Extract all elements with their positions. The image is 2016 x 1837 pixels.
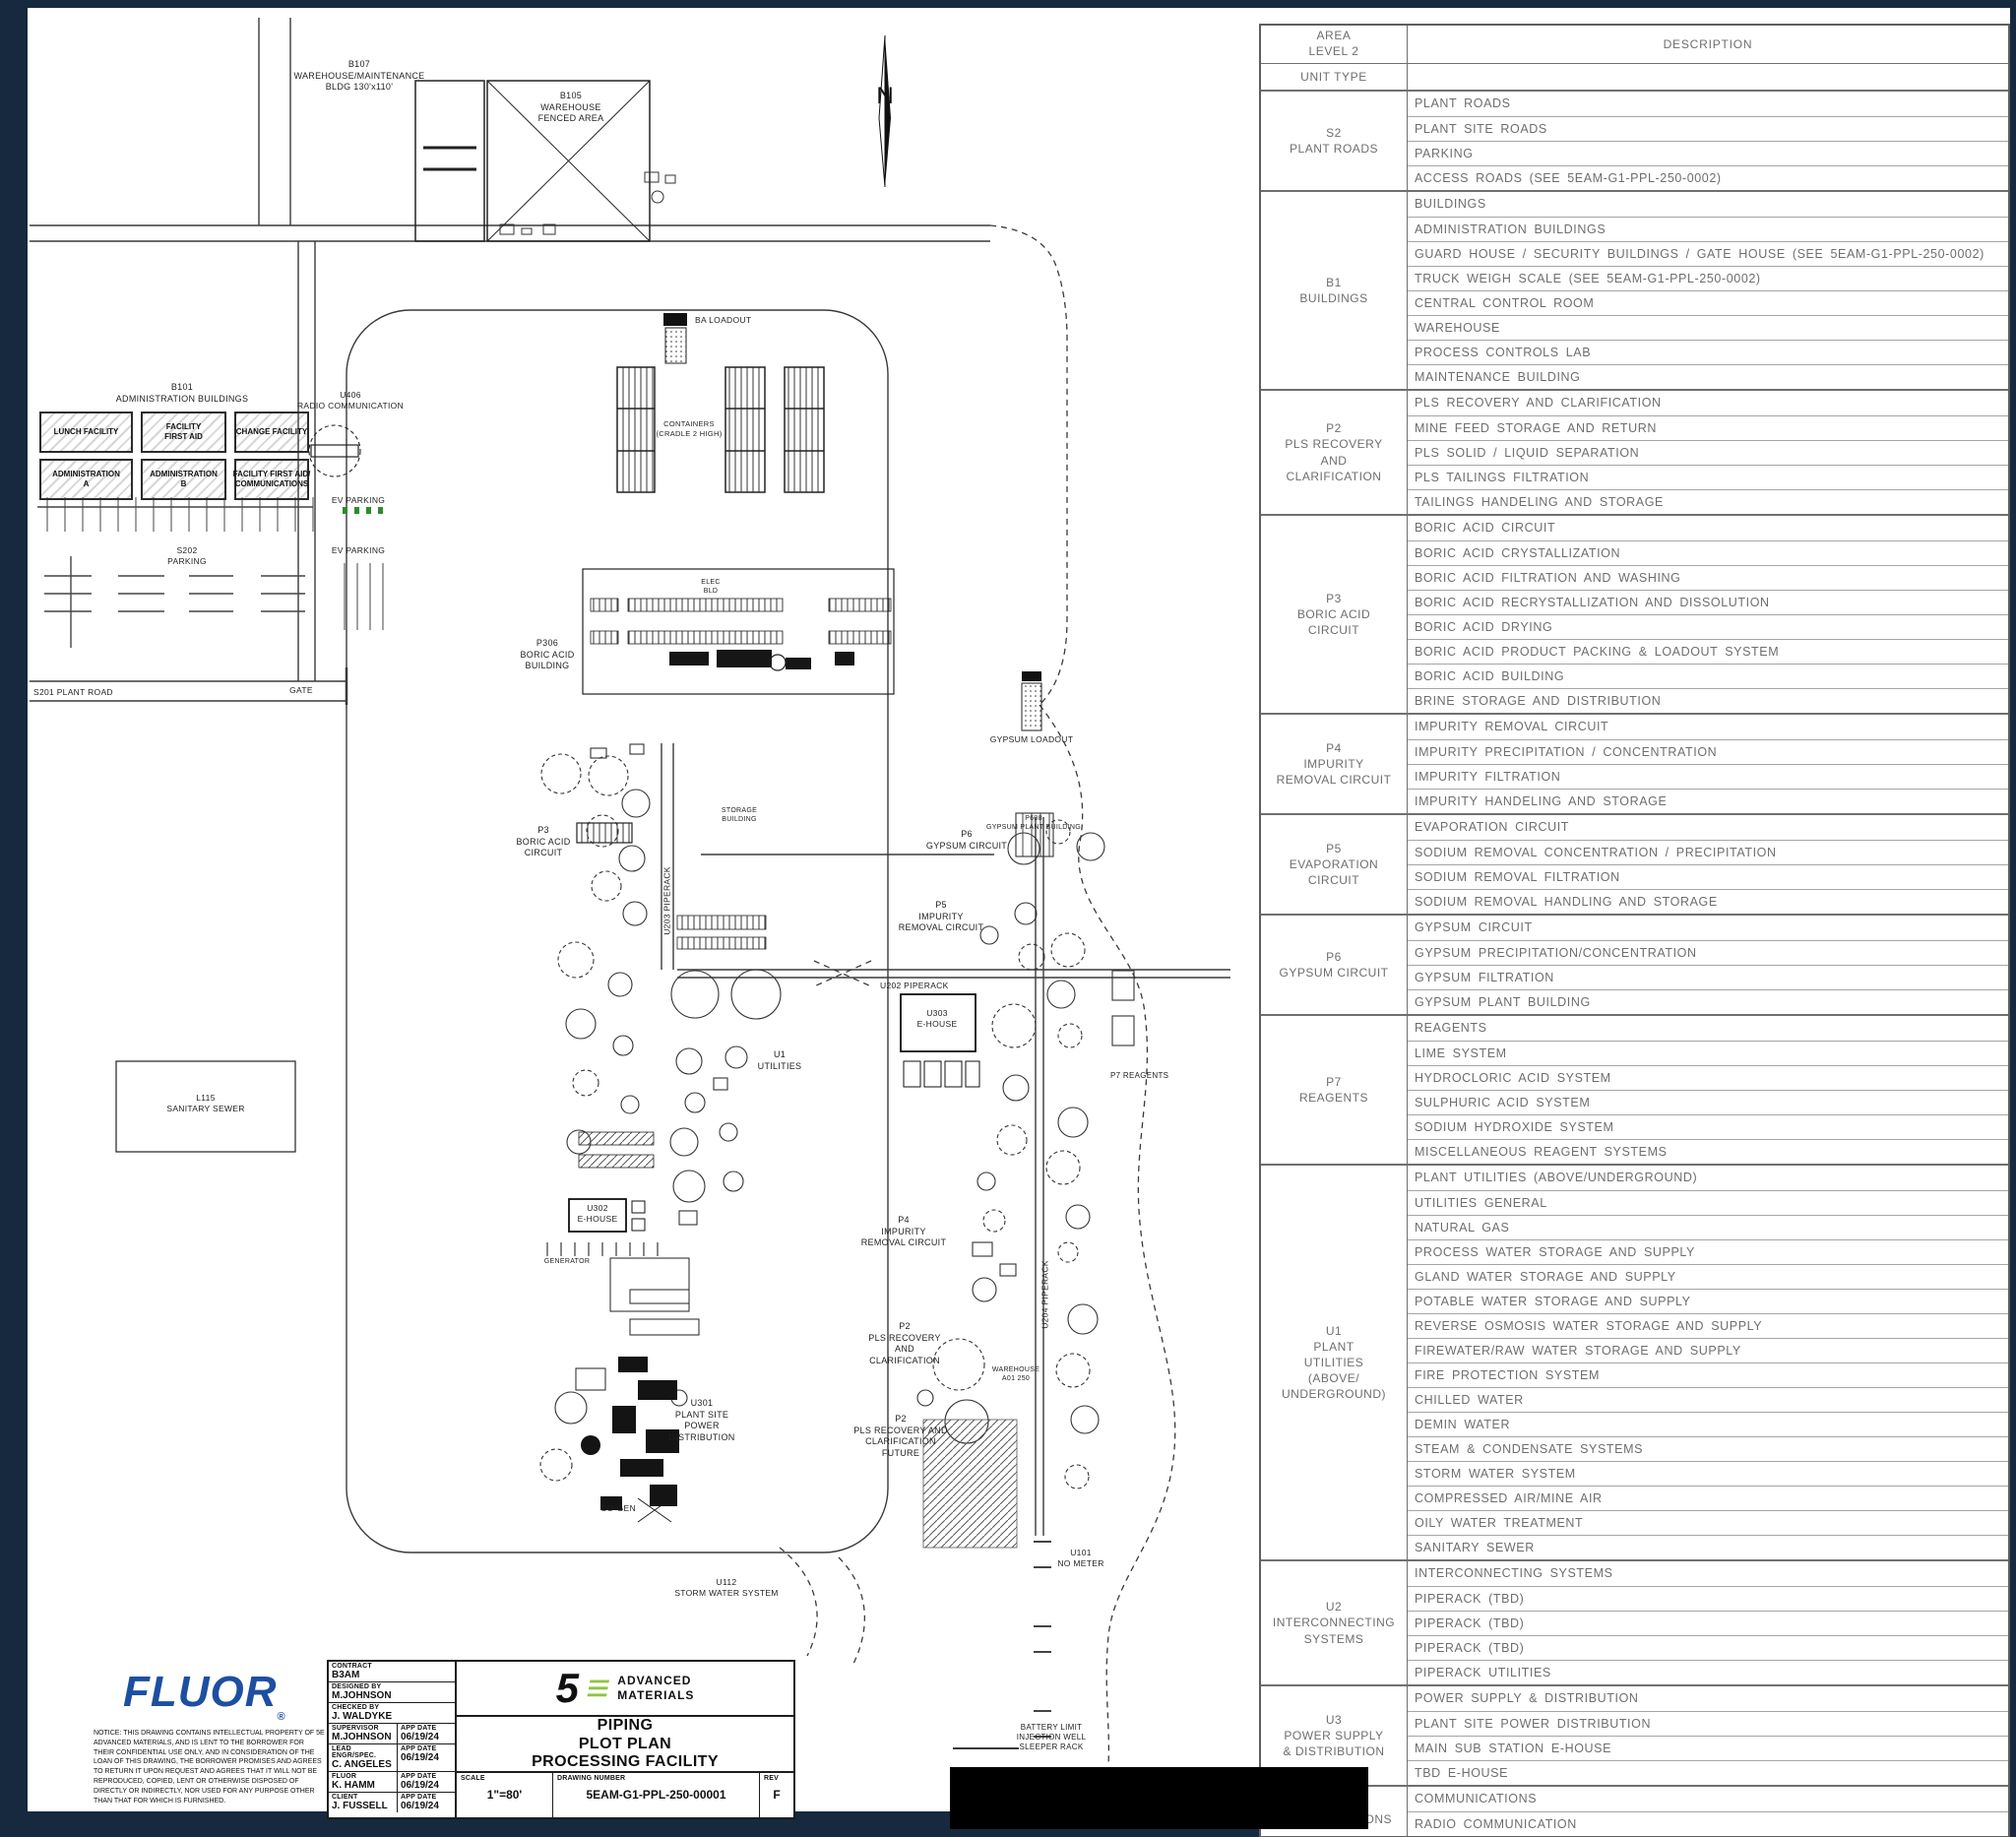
legend-group-label: B1BUILDINGS [1299, 275, 1367, 306]
title-block-approvals: CONTRACTB3AM DESIGNED BYM.JOHNSON CHECKE… [329, 1662, 457, 1817]
legend-row: GYPSUM PLANT BUILDING [1408, 989, 2008, 1014]
legend-row: TRUCK WEIGH SCALE (SEE 5EAM-G1-PPL-250-0… [1408, 266, 2008, 290]
legend-row: CENTRAL CONTROL ROOM [1408, 290, 2008, 315]
legend-row: MAINTENANCE BUILDING [1408, 364, 2008, 389]
legend-row: POTABLE WATER STORAGE AND SUPPLY [1408, 1289, 2008, 1313]
label-u112-storm-water: U112 STORM WATER SYSTEM [674, 1577, 778, 1599]
legend-row: PIPERACK (TBD) [1408, 1586, 2008, 1611]
warehouse-buildings [415, 81, 650, 241]
legend-group-U3: U3POWER SUPPLY& DISTRIBUTIONPOWER SUPPLY… [1261, 1686, 2008, 1787]
legend-row: REAGENTS [1408, 1016, 2008, 1041]
legend-row: MINE FEED STORAGE AND RETURN [1408, 415, 2008, 440]
legend-group-label: P3BORIC ACIDCIRCUIT [1297, 591, 1370, 639]
legend-row: PLANT SITE POWER DISTRIBUTION [1408, 1711, 2008, 1736]
legend-row: BORIC ACID CIRCUIT [1408, 516, 2008, 540]
legend-row: SULPHURIC ACID SYSTEM [1408, 1090, 2008, 1114]
legend-row: SODIUM REMOVAL FILTRATION [1408, 864, 2008, 889]
legend-row: SODIUM HYDROXIDE SYSTEM [1408, 1114, 2008, 1139]
bottom-black-patch [950, 1767, 1368, 1829]
label-ev-parking-2: EV PARKING [332, 545, 385, 556]
legend-row: BORIC ACID PRODUCT PACKING & LOADOUT SYS… [1408, 639, 2008, 664]
label-ba-loadout: BA LOADOUT [695, 315, 751, 326]
admin-building-b: ADMINISTRATION B [141, 459, 226, 500]
legend-row: PLANT ROADS [1408, 92, 2008, 116]
legend-row: GYPSUM FILTRATION [1408, 965, 2008, 989]
legend-group-P5: P5EVAPORATIONCIRCUITEVAPORATION CIRCUITS… [1261, 815, 2008, 916]
legend-row: MAIN SUB STATION E-HOUSE [1408, 1736, 2008, 1760]
legend-group-label: P2PLS RECOVERYANDCLARIFICATION [1285, 420, 1382, 484]
loadout-docks [500, 172, 1041, 730]
legend-row: UTILITIES GENERAL [1408, 1190, 2008, 1215]
legend-group-U1: U1PLANTUTILITIES(ABOVE/UNDERGROUND)PLANT… [1261, 1166, 2008, 1561]
power-distribution-machinery [581, 1357, 679, 1510]
legend-unit-type-row: UNIT TYPE [1261, 64, 2008, 92]
registered-mark: ® [278, 1711, 286, 1723]
label-p3: P3 BORIC ACID CIRCUIT [516, 825, 570, 859]
drawing-number-cell: DRAWING NUMBER 5EAM-G1-PPL-250-00001 [553, 1773, 760, 1817]
legend-row: OILY WATER TREATMENT [1408, 1510, 2008, 1535]
legend-row: TBD E-HOUSE [1408, 1760, 2008, 1785]
admin-building-first-aid: FACILITY FIRST AID [141, 412, 226, 453]
legend-row: SODIUM REMOVAL CONCENTRATION / PRECIPITA… [1408, 840, 2008, 864]
title-block: CONTRACTB3AM DESIGNED BYM.JOHNSON CHECKE… [327, 1660, 795, 1819]
legend-groups: S2PLANT ROADSPLANT ROADSPLANT SITE ROADS… [1261, 92, 2008, 1836]
legend-group-U2: U2INTERCONNECTINGSYSTEMSINTERCONNECTING … [1261, 1561, 2008, 1686]
parking-lines [37, 497, 1051, 1737]
legend-row: BRINE STORAGE AND DISTRIBUTION [1408, 688, 2008, 713]
label-storage-building: STORAGE BUILDING [722, 807, 757, 825]
approval-row: CLIENTJ. FUSSELLAPP DATE06/19/24 [329, 1793, 455, 1812]
legend-row: ACCESS ROADS (SEE 5EAM-G1-PPL-250-0002) [1408, 165, 2008, 190]
area-legend-table: AREA LEVEL 2 DESCRIPTION UNIT TYPE S2PLA… [1259, 24, 2010, 1837]
label-gypsum-loadout: GYPSUM LOADOUT [990, 734, 1074, 745]
legend-group-P7: P7REAGENTSREAGENTSLIME SYSTEMHYDROCLORIC… [1261, 1016, 2008, 1166]
label-gate: GATE [289, 685, 313, 696]
legend-row: REVERSE OSMOSIS WATER STORAGE AND SUPPLY [1408, 1313, 2008, 1338]
legend-row: DEMIN WATER [1408, 1412, 2008, 1436]
drawing-title: PIPING PLOT PLAN PROCESSING FACILITY [457, 1717, 793, 1771]
legend-row: PARKING [1408, 141, 2008, 165]
legend-group-label: P6GYPSUM CIRCUIT [1279, 949, 1388, 981]
roads [30, 18, 1230, 1748]
legend-col1-header: AREA LEVEL 2 [1261, 26, 1408, 63]
legend-row: PLS SOLID / LIQUID SEPARATION [1408, 440, 2008, 465]
label-b107: B107 WAREHOUSE/MAINTENANCE BLDG 130'x110… [294, 59, 425, 94]
north-arrow-icon [879, 35, 891, 187]
5e-advanced-materials-logo: 5≡ ADVANCEDMATERIALS [457, 1662, 793, 1717]
label-p7-reagents: P7 REAGENTS [1110, 1071, 1168, 1081]
legend-row: SANITARY SEWER [1408, 1535, 2008, 1559]
legend-row: WAREHOUSE [1408, 315, 2008, 340]
legend-group-U4: U4COMMUNICATIONSCOMMUNICATIONSRADIO COMM… [1261, 1787, 2008, 1836]
legend-row: IMPURITY HANDELING AND STORAGE [1408, 789, 2008, 813]
legend-row: PIPERACK UTILITIES [1408, 1660, 2008, 1684]
label-s202-parking: S202 PARKING [167, 545, 207, 567]
label-l115-sanitary-sewer: L115 SANITARY SEWER [166, 1093, 244, 1114]
label-warehouse-small: WAREHOUSE A01 250 [992, 1366, 1039, 1384]
label-p5: P5 IMPURITY REMOVAL CIRCUIT [899, 900, 984, 934]
label-b105: B105 WAREHOUSE FENCED AREA [538, 91, 604, 125]
legend-row: PROCESS CONTROLS LAB [1408, 340, 2008, 364]
boric-acid-building [583, 569, 894, 694]
fluor-logo: FLUOR® [123, 1668, 286, 1723]
legend-row: PIPERACK (TBD) [1408, 1611, 2008, 1635]
legend-row: PIPERACK (TBD) [1408, 1635, 2008, 1660]
label-co-gen: CO-GEN [600, 1503, 636, 1514]
label-u202-piperack: U202 PIPERACK [880, 981, 949, 991]
label-containers: CONTAINERS (CRADLE 2 HIGH) [656, 419, 722, 438]
legend-row: STEAM & CONDENSATE SYSTEMS [1408, 1436, 2008, 1461]
legend-row: LIME SYSTEM [1408, 1041, 2008, 1065]
legend-header: AREA LEVEL 2 DESCRIPTION [1261, 26, 2008, 64]
legend-row: ADMINISTRATION BUILDINGS [1408, 217, 2008, 241]
legend-row: IMPURITY REMOVAL CIRCUIT [1408, 715, 2008, 739]
admin-building-a: ADMINISTRATION A [39, 459, 133, 500]
admin-building-lunch: LUNCH FACILITY [39, 412, 133, 453]
label-s201-plant-road: S201 PLANT ROAD [33, 687, 113, 698]
approval-row: FLUORK. HAMMAPP DATE06/19/24 [329, 1772, 455, 1793]
legend-row: INTERCONNECTING SYSTEMS [1408, 1561, 2008, 1586]
legend-row: IMPURITY PRECIPITATION / CONCENTRATION [1408, 739, 2008, 764]
notice-text: NOTICE: THIS DRAWING CONTAINS INTELLECTU… [94, 1729, 326, 1805]
label-u301: U301 PLANT SITE POWER DISTRIBUTION [668, 1398, 734, 1443]
legend-col2-header: DESCRIPTION [1408, 26, 2008, 63]
legend-row: SODIUM REMOVAL HANDLING AND STORAGE [1408, 889, 2008, 914]
legend-row: PLS RECOVERY AND CLARIFICATION [1408, 391, 2008, 415]
site-boxes [116, 425, 360, 1152]
legend-row: PLS TAILINGS FILTRATION [1408, 465, 2008, 489]
label-u1-utilities: U1 UTILITIES [758, 1049, 802, 1072]
scale-cell: SCALE 1"=80' [457, 1773, 553, 1817]
label-elec-bld: ELEC BLD [701, 579, 721, 597]
legend-group-P2: P2PLS RECOVERYANDCLARIFICATIONPLS RECOVE… [1261, 391, 2008, 516]
legend-group-label: P4IMPURITYREMOVAL CIRCUIT [1277, 740, 1392, 789]
label-p306: P306 BORIC ACID BUILDING [520, 638, 574, 672]
label-p2: P2 PLS RECOVERY AND CLARIFICATION [868, 1321, 940, 1366]
legend-row: MISCELLANEOUS REAGENT SYSTEMS [1408, 1139, 2008, 1164]
ev-parking-dots [343, 507, 383, 514]
legend-row: GYPSUM PRECIPITATION/CONCENTRATION [1408, 940, 2008, 965]
legend-row: IMPURITY FILTRATION [1408, 764, 2008, 789]
approval-row: SUPERVISORM.JOHNSONAPP DATE06/19/24 [329, 1724, 455, 1744]
legend-row: PLANT SITE ROADS [1408, 116, 2008, 141]
legend-group-label: U1PLANTUTILITIES(ABOVE/UNDERGROUND) [1282, 1323, 1386, 1403]
legend-row: BORIC ACID DRYING [1408, 614, 2008, 639]
legend-row: TAILINGS HANDELING AND STORAGE [1408, 489, 2008, 514]
legend-row: FIRE PROTECTION SYSTEM [1408, 1362, 2008, 1387]
label-b101: B101 ADMINISTRATION BUILDINGS [116, 382, 249, 405]
legend-row: GYPSUM CIRCUIT [1408, 916, 2008, 940]
label-ev-parking-1: EV PARKING [332, 495, 385, 506]
label-u203-piperack: U203 PIPERACK [662, 866, 673, 935]
legend-row: POWER SUPPLY & DISTRIBUTION [1408, 1686, 2008, 1711]
legend-row: BORIC ACID CRYSTALLIZATION [1408, 540, 2008, 565]
label-u101-no-meter: U101 NO METER [1057, 1548, 1103, 1569]
legend-group-B1: B1BUILDINGSBUILDINGSADMINISTRATION BUILD… [1261, 192, 2008, 391]
label-u204-piperack: U204 PIPERACK [1040, 1260, 1051, 1329]
label-battery-limit: BATTERY LIMIT INJECTION WELL SLEEPER RAC… [1017, 1723, 1086, 1753]
legend-row: BUILDINGS [1408, 192, 2008, 217]
legend-row: STORM WATER SYSTEM [1408, 1461, 2008, 1486]
approval-row: LEAD ENGR/SPEC.C. ANGELESAPP DATE06/19/2… [329, 1744, 455, 1772]
legend-group-label: U2INTERCONNECTINGSYSTEMS [1273, 1599, 1395, 1647]
legend-group-P4: P4IMPURITYREMOVAL CIRCUITIMPURITY REMOVA… [1261, 715, 2008, 815]
legend-group-S2: S2PLANT ROADSPLANT ROADSPLANT SITE ROADS… [1261, 92, 2008, 192]
legend-row: CHILLED WATER [1408, 1387, 2008, 1412]
legend-row: BORIC ACID RECRYSTALLIZATION AND DISSOLU… [1408, 590, 2008, 614]
rev-cell: REV F [760, 1773, 793, 1817]
legend-group-label: U3POWER SUPPLY& DISTRIBUTION [1283, 1712, 1384, 1760]
legend-row: RADIO COMMUNICATION [1408, 1811, 2008, 1836]
legend-row: COMPRESSED AIR/MINE AIR [1408, 1486, 2008, 1510]
legend-row: NATURAL GAS [1408, 1215, 2008, 1239]
legend-row: HYDROCLORIC ACID SYSTEM [1408, 1065, 2008, 1090]
legend-row: BORIC ACID FILTRATION AND WASHING [1408, 565, 2008, 590]
legend-row: EVAPORATION CIRCUIT [1408, 815, 2008, 840]
admin-building-comms: FACILITY FIRST AID/ COMMUNICATIONS [234, 459, 309, 500]
label-u303-ehouse: U303 E-HOUSE [917, 1008, 958, 1030]
legend-row: GUARD HOUSE / SECURITY BUILDINGS / GATE … [1408, 241, 2008, 266]
label-generator: GENERATOR [544, 1258, 590, 1267]
legend-row: PROCESS WATER STORAGE AND SUPPLY [1408, 1239, 2008, 1264]
legend-row: BORIC ACID BUILDING [1408, 664, 2008, 688]
legend-group-label: P5EVAPORATIONCIRCUIT [1290, 841, 1378, 889]
admin-building-change: CHANGE FACILITY [234, 412, 309, 453]
legend-row: PLANT UTILITIES (ABOVE/UNDERGROUND) [1408, 1166, 2008, 1190]
legend-group-label: P7REAGENTS [1299, 1074, 1368, 1106]
label-p4: P4 IMPURITY REMOVAL CIRCUIT [861, 1215, 947, 1249]
legend-group-P3: P3BORIC ACIDCIRCUITBORIC ACID CIRCUITBOR… [1261, 516, 2008, 715]
label-u302-ehouse: U302 E-HOUSE [578, 1203, 618, 1225]
legend-row: COMMUNICATIONS [1408, 1787, 2008, 1811]
label-p2-future: P2 PLS RECOVERY AND CLARIFICATION FUTURE [853, 1414, 948, 1459]
north-letter: N [876, 83, 893, 110]
label-p6: P6 GYPSUM CIRCUIT [926, 829, 1007, 852]
label-u406-radio: U406 RADIO COMMUNICATION [297, 390, 404, 412]
legend-row: GLAND WATER STORAGE AND SUPPLY [1408, 1264, 2008, 1289]
drawing-sheet-view: { "frame": {"border_color": "#16293f", "… [0, 0, 2016, 1837]
legend-group-label: S2PLANT ROADS [1290, 125, 1378, 157]
legend-group-P6: P6GYPSUM CIRCUITGYPSUM CIRCUITGYPSUM PRE… [1261, 916, 2008, 1016]
tanks [540, 744, 1134, 1489]
legend-row: FIREWATER/RAW WATER STORAGE AND SUPPLY [1408, 1338, 2008, 1362]
